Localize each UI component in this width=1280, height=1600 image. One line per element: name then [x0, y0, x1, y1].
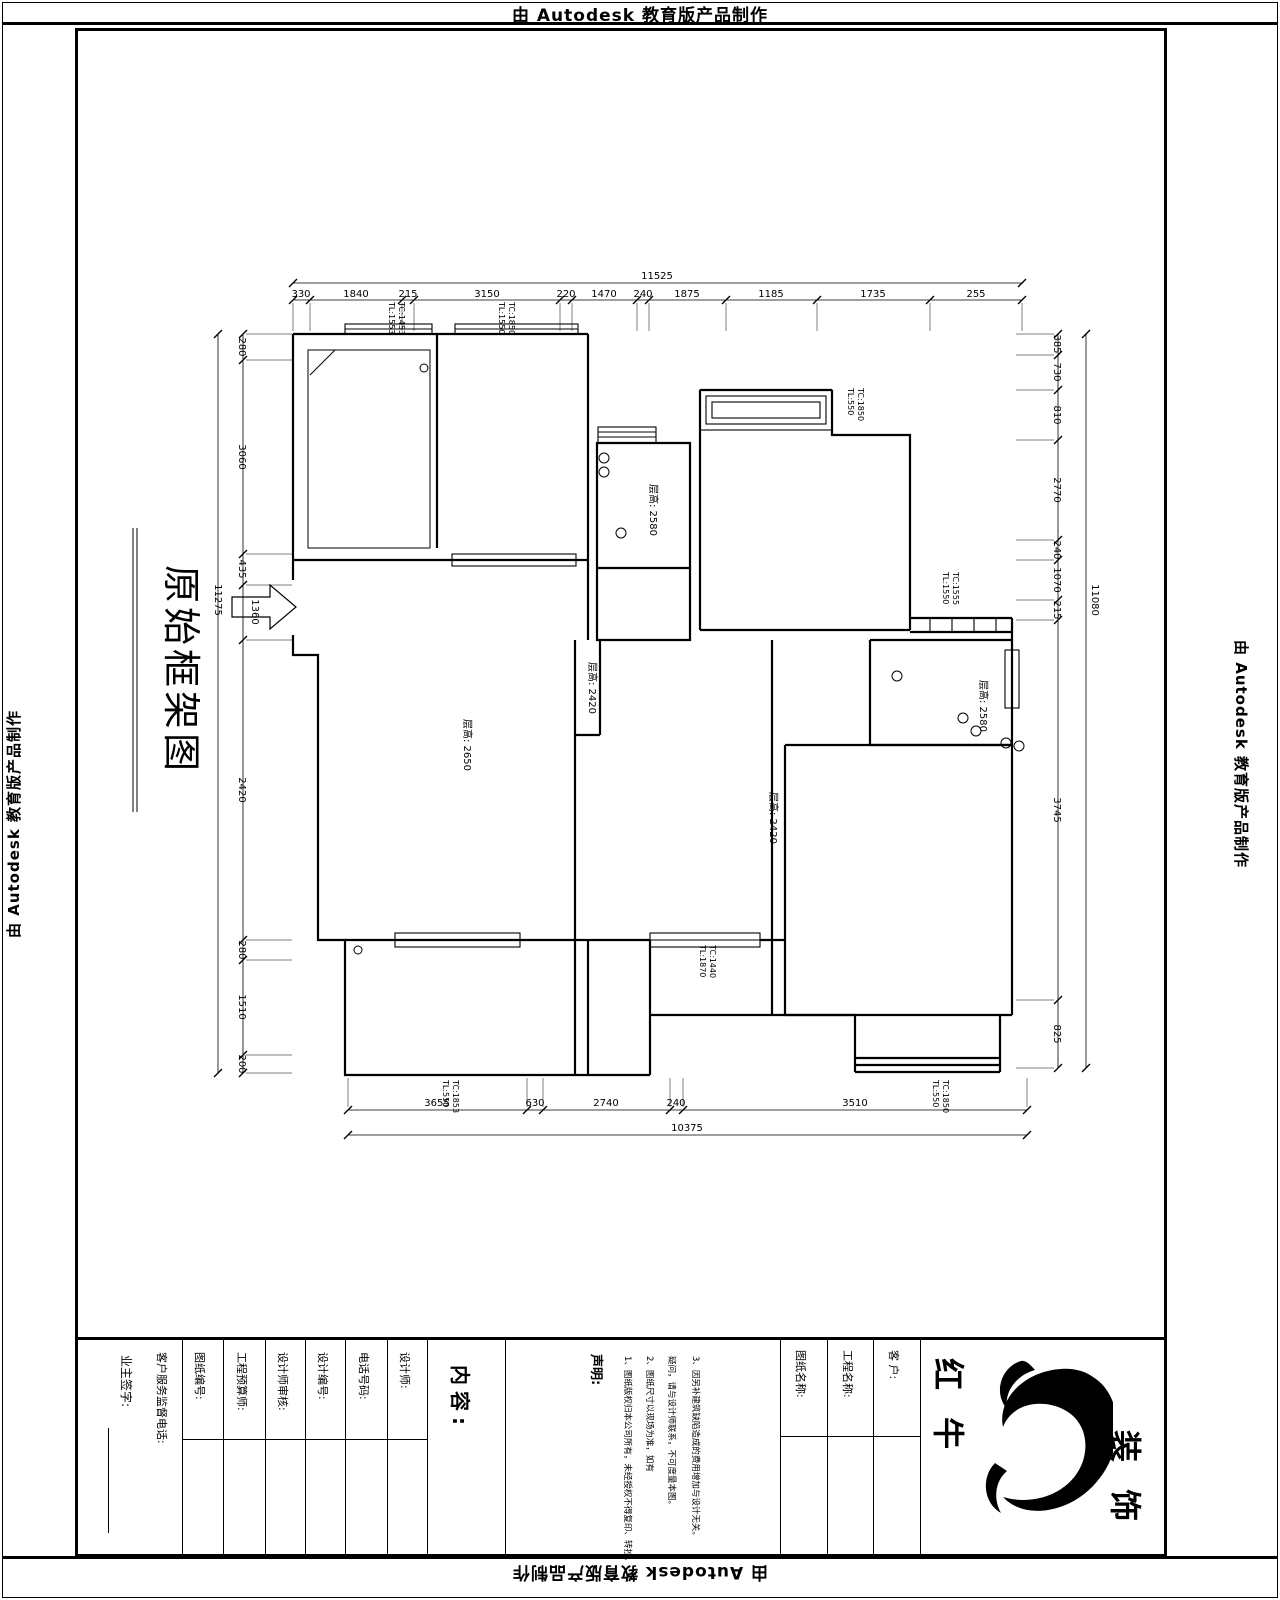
field-design-no: 设计编号: — [315, 1352, 331, 1400]
window-tag-0a: TL:1553 — [387, 301, 396, 334]
room-label-shaft: 层高: 2420 — [586, 662, 599, 714]
field-project-name: 工程名称: — [840, 1350, 856, 1398]
statement-line-4: 3、因另补建筑缺陷造成的费用增加与设计无关。 — [690, 1356, 702, 1540]
tblock-divider — [223, 1340, 224, 1557]
dim-left-seg-3: 1360 — [249, 599, 260, 624]
window-tag-1b: TC:1850 — [507, 301, 516, 335]
bull-logo-icon — [973, 1355, 1113, 1540]
dim-top-seg-0: 330 — [291, 289, 310, 300]
tblock-divider — [505, 1340, 506, 1557]
dim-right-seg-7: 3745 — [1051, 797, 1062, 822]
dim-left-seg-1: 3060 — [236, 444, 247, 469]
title-block: 业主签字: 客户服务监督电话: 图纸编号: 工程预算师: 设计师审核: 设计编号… — [78, 1337, 1164, 1557]
field-design-review: 设计师审核: — [275, 1352, 291, 1411]
title-underline — [133, 528, 137, 812]
dim-top-seg-2: 215 — [398, 289, 417, 300]
dim-top-seg-6: 240 — [633, 289, 652, 300]
statement-line-2: 2、图纸尺寸以现场为准，如有 — [644, 1356, 656, 1472]
window-tag-1a: TL:1550 — [497, 301, 506, 334]
entry-arrow-icon — [232, 585, 296, 629]
owner-signature-line — [108, 1428, 109, 1533]
dim-right-seg-2: 810 — [1051, 405, 1062, 424]
window-tag-4b: TC:1440 — [708, 944, 717, 978]
dim-top-seg-3: 3150 — [474, 289, 499, 300]
tblock-divider — [305, 1340, 306, 1557]
field-drawing-name: 图纸名称: — [793, 1350, 809, 1398]
walls-layer — [293, 334, 1012, 1075]
tblock-divider — [427, 1340, 428, 1557]
statement-label: 声明: — [588, 1354, 607, 1385]
tblock-divider — [265, 1340, 266, 1557]
window-tag-3a: TL:1550 — [941, 571, 950, 604]
drawing-title: 原始框架图 — [159, 565, 203, 775]
dim-left-seg-6: 1510 — [236, 994, 247, 1019]
windows-layer — [345, 324, 1019, 947]
statement-line-1: 1、图纸版权归本公司所有，未经授权不得复印、转抄。 — [622, 1356, 634, 1565]
window-tag-4a: TL:1870 — [698, 944, 707, 977]
field-client: 客 户: — [886, 1350, 902, 1379]
interior-detail-layer — [232, 350, 1024, 954]
tblock-divider — [345, 1340, 346, 1557]
dim-left-seg-4: 2420 — [236, 777, 247, 802]
dim-left-seg-5: 280 — [236, 940, 247, 959]
field-drawing-no: 图纸编号: — [192, 1352, 208, 1400]
window-tag-0b: TC:1453 — [397, 301, 406, 335]
field-designer: 设计师: — [397, 1352, 413, 1389]
dim-right-seg-5: 1070 — [1051, 567, 1062, 592]
dim-right-seg-0: 385 — [1051, 334, 1062, 353]
content-label: 内容: — [447, 1365, 476, 1431]
dim-top-seg-1: 1840 — [343, 289, 368, 300]
dim-top-total: 11525 — [641, 271, 673, 282]
tblock-divider — [182, 1340, 183, 1557]
tblock-divider — [873, 1340, 874, 1557]
dim-right-seg-1: 730 — [1051, 362, 1062, 381]
tblock-subline — [780, 1436, 920, 1437]
dim-bottom-seg-3: 240 — [666, 1098, 685, 1109]
room-label-bath: 层高: 2580 — [977, 680, 990, 732]
statement-line-3: 疑问，请与设计师联系，不可度量本图。 — [666, 1356, 678, 1509]
dim-right-seg-6: 215 — [1051, 600, 1062, 619]
dim-top-seg-5: 1470 — [591, 289, 616, 300]
dim-left-seg-2: 435 — [236, 559, 247, 578]
dim-top-seg-9: 1735 — [860, 289, 885, 300]
brand-name-left: 红 牛 — [927, 1358, 973, 1457]
window-tag-6a: TL:550 — [931, 1079, 940, 1107]
dim-right-seg-3: 2770 — [1051, 477, 1062, 502]
dim-right-seg-8: 825 — [1051, 1024, 1062, 1043]
dim-top-seg-10: 255 — [966, 289, 985, 300]
dim-bottom-total: 10375 — [671, 1123, 703, 1134]
tblock-divider — [387, 1340, 388, 1557]
dim-top-seg-4: 220 — [556, 289, 575, 300]
bottom-rule — [2, 1556, 1278, 1559]
autodesk-banner-bottom: 由 Autodesk 教育版产品制作 — [0, 1562, 1280, 1587]
room-label-hall: 层高: 2650 — [461, 719, 474, 771]
dim-left-total: 11275 — [212, 584, 223, 616]
window-tag-5a: TL:550 — [441, 1079, 450, 1107]
dim-bottom-seg-4: 3510 — [842, 1098, 867, 1109]
room-label-kitchen: 层高: 2580 — [647, 484, 660, 536]
window-tag-2b: TC:1850 — [856, 387, 865, 421]
field-phone: 电话号码: — [356, 1352, 372, 1400]
tblock-subline — [182, 1439, 427, 1440]
dim-bottom-seg-2: 2740 — [593, 1098, 618, 1109]
tblock-divider — [920, 1340, 921, 1557]
tblock-divider — [780, 1340, 781, 1557]
window-tag-2a: TL:550 — [846, 387, 855, 415]
field-budgeter: 工程预算师: — [234, 1352, 250, 1411]
dim-bottom-seg-1: 630 — [525, 1098, 544, 1109]
dim-right-total: 11080 — [1089, 584, 1100, 616]
dim-left-seg-0: 280 — [236, 337, 247, 356]
cad-sheet: { "banners": { "top": "由 Autodesk 教育版产品制… — [0, 0, 1280, 1600]
room-label-bedroom: 层高: 2420 — [767, 792, 780, 844]
tblock-divider — [827, 1340, 828, 1557]
dim-top-seg-7: 1875 — [674, 289, 699, 300]
owner-sign-label: 业主签字: — [118, 1355, 135, 1407]
window-tag-5b: TC:1853 — [451, 1079, 460, 1113]
dim-right-seg-4: 240 — [1051, 540, 1062, 559]
dim-top-seg-8: 1185 — [758, 289, 783, 300]
window-tag-6b: TC:1850 — [941, 1079, 950, 1113]
window-tag-3b: TC:1555 — [951, 571, 960, 605]
service-phone-label: 客户服务监督电话: — [154, 1352, 170, 1444]
dim-left-seg-7: 200 — [236, 1054, 247, 1073]
